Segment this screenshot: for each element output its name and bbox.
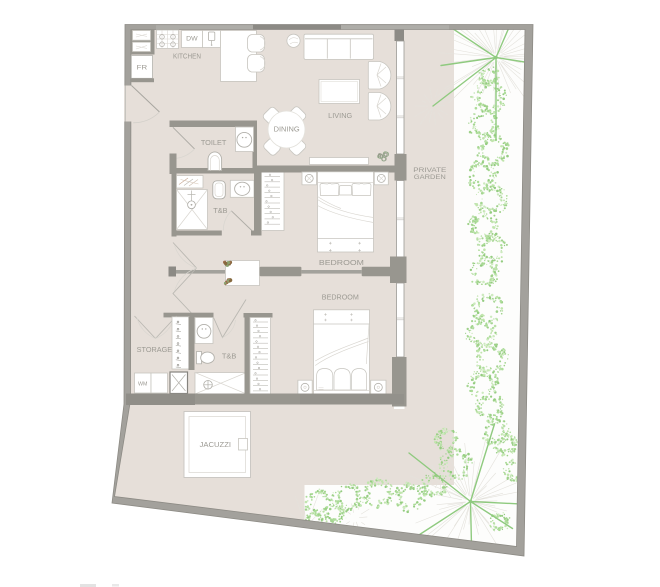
svg-text:WM: WM (138, 382, 148, 388)
svg-text:BEDROOM: BEDROOM (322, 295, 359, 302)
svg-text:FR: FR (137, 65, 148, 71)
svg-text:LIVING: LIVING (328, 113, 352, 120)
svg-text:GARDEN: GARDEN (414, 174, 446, 181)
svg-text:BEDROOM: BEDROOM (319, 260, 364, 267)
svg-text:DINING: DINING (274, 127, 300, 134)
svg-text:T&B: T&B (222, 354, 237, 361)
svg-text:T&B: T&B (213, 208, 228, 215)
svg-text:JACUZZI: JACUZZI (200, 442, 232, 449)
svg-text:KITCHEN: KITCHEN (173, 53, 201, 60)
svg-text:TOILET: TOILET (201, 140, 227, 147)
svg-text:PRIVATE: PRIVATE (413, 167, 447, 174)
svg-text:DW: DW (186, 36, 198, 42)
svg-text:STORAGE: STORAGE (137, 347, 173, 354)
